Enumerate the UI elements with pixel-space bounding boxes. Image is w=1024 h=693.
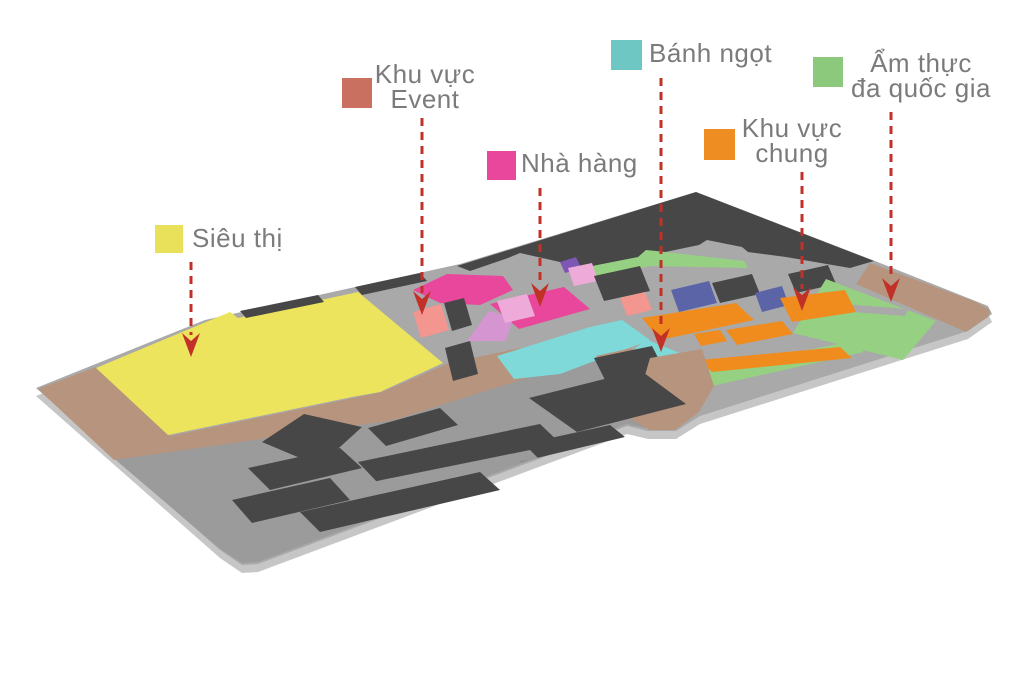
legend-swatch-am-thuc — [813, 57, 843, 87]
legend-swatch-khu-vuc-event — [342, 78, 372, 108]
legend-swatch-banh-ngot — [611, 40, 642, 70]
legend-label-khu-vuc-chung: Khu vực chung — [737, 116, 847, 166]
floor-plan-figure: Siêu thị Khu vực Event Nhà hàng Bánh ngọ… — [0, 0, 1024, 693]
legend-label-sieu-thi: Siêu thị — [192, 226, 283, 251]
legend-swatch-nha-hang — [487, 151, 516, 180]
legend-label-khu-vuc-event: Khu vực Event — [370, 62, 480, 112]
legend-label-am-thuc: Ẩm thực đa quốc gia — [841, 51, 1001, 101]
floor-plan-svg — [0, 0, 1024, 693]
legend-label-banh-ngot: Bánh ngọt — [649, 41, 772, 66]
legend-swatch-khu-vuc-chung — [704, 129, 735, 160]
legend-label-nha-hang: Nhà hàng — [521, 151, 638, 176]
legend-swatch-sieu-thi — [155, 225, 183, 253]
